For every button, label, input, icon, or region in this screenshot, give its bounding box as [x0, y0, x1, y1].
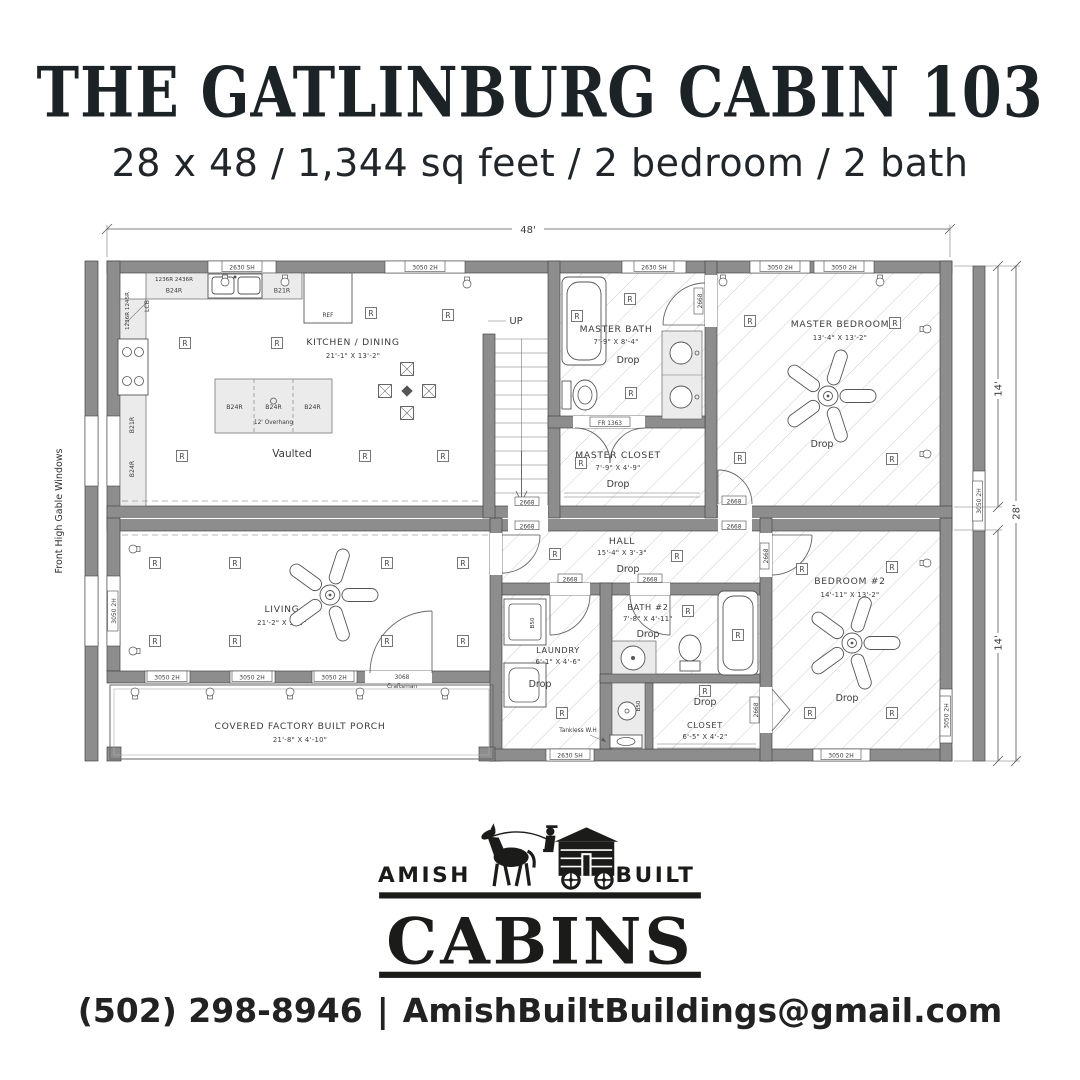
- svg-text:MASTER BATH: MASTER BATH: [580, 324, 653, 335]
- svg-text:Drop: Drop: [811, 439, 834, 450]
- svg-text:HALL: HALL: [609, 536, 635, 547]
- svg-text:Drop: Drop: [617, 564, 640, 575]
- svg-text:B24R: B24R: [304, 404, 321, 411]
- floor-plan: R: [50, 211, 1030, 796]
- washer: [504, 599, 546, 645]
- svg-text:Tankless W.H: Tankless W.H: [558, 728, 597, 734]
- left-gable-wall-strip: [85, 261, 98, 761]
- svg-text:12' Overhang: 12' Overhang: [254, 420, 294, 426]
- refrigerator: REF: [304, 273, 352, 323]
- svg-text:Drop: Drop: [617, 355, 640, 366]
- range: [118, 339, 148, 395]
- logo-divider-bottom: [379, 972, 701, 978]
- svg-text:7'-9" X 4'-9": 7'-9" X 4'-9": [595, 464, 640, 472]
- logo-built: BUILT: [616, 863, 696, 888]
- svg-text:3050 2H: 3050 2H: [111, 598, 118, 624]
- svg-text:COVERED FACTORY BUILT PORCH: COVERED FACTORY BUILT PORCH: [215, 721, 386, 732]
- phone-number: (502) 298-8946: [78, 991, 363, 1030]
- svg-text:7'-9" X 8'-4": 7'-9" X 8'-4": [593, 338, 638, 346]
- svg-text:3050 2H: 3050 2H: [239, 674, 265, 681]
- svg-text:LCB: LCB: [144, 300, 151, 312]
- svg-text:21'-8" X 4'-10": 21'-8" X 4'-10": [273, 736, 327, 744]
- svg-text:Drop: Drop: [637, 629, 660, 640]
- svg-text:B21R: B21R: [274, 288, 291, 295]
- svg-text:B24R: B24R: [226, 404, 243, 411]
- svg-text:B50: B50: [636, 700, 642, 711]
- svg-text:Vaulted: Vaulted: [272, 448, 312, 460]
- svg-text:3050 2H: 3050 2H: [976, 488, 983, 514]
- svg-text:14'-11" X 13'-2": 14'-11" X 13'-2": [821, 591, 880, 599]
- bath2-vanity: [612, 641, 656, 674]
- svg-text:Drop: Drop: [607, 479, 630, 490]
- svg-text:MASTER BEDROOM: MASTER BEDROOM: [791, 319, 890, 330]
- svg-text:1236R 2436R: 1236R 2436R: [155, 277, 193, 283]
- svg-text:B24R: B24R: [166, 288, 183, 295]
- stairs: UP: [488, 316, 548, 504]
- svg-text:15'-4" X 3'-3": 15'-4" X 3'-3": [597, 549, 647, 557]
- svg-text:2630 SH: 2630 SH: [229, 264, 255, 271]
- svg-text:2668: 2668: [563, 578, 578, 584]
- svg-text:3050 2H: 3050 2H: [767, 264, 793, 271]
- svg-text:Drop: Drop: [694, 697, 717, 708]
- logo-amish: AMISH: [378, 863, 471, 888]
- porch: COVERED FACTORY BUILT PORCH 21'-8" X 4'-…: [110, 685, 493, 759]
- svg-text:13'-4" X 13'-2": 13'-4" X 13'-2": [813, 334, 867, 342]
- bath2-toilet: [679, 635, 701, 671]
- tankless-water-heater: [610, 735, 642, 748]
- svg-text:2668: 2668: [727, 525, 742, 531]
- stairs-up-label: UP: [509, 316, 522, 327]
- svg-text:1236R 1245R: 1236R 1245R: [125, 292, 131, 330]
- kitchen-cabinets: REF 1236R 2436R B24R B21R 1236R 1245R LC…: [118, 273, 482, 506]
- svg-text:2668: 2668: [520, 525, 535, 531]
- utility-chase: B50: [610, 683, 645, 749]
- svg-text:3050 2H: 3050 2H: [831, 264, 857, 271]
- svg-text:3050 2H: 3050 2H: [943, 703, 950, 729]
- svg-text:B24R: B24R: [129, 460, 136, 477]
- page-subtitle: 28 x 48 / 1,344 sq feet / 2 bedroom / 2 …: [0, 141, 1080, 185]
- stairs-arrow: [516, 451, 527, 502]
- toilet: [562, 380, 597, 410]
- dim-14-upper: 14': [994, 381, 1005, 396]
- kitchen-island: B24R B24R B24R 12' Overhang: [215, 379, 332, 433]
- svg-text:2630 SH: 2630 SH: [557, 752, 583, 759]
- svg-text:B24R: B24R: [265, 404, 282, 411]
- svg-text:7'-8" X 4'-11": 7'-8" X 4'-11": [623, 615, 673, 623]
- svg-text:3050 2H: 3050 2H: [154, 674, 180, 681]
- svg-text:21'-1" X 13'-2": 21'-1" X 13'-2": [326, 352, 380, 360]
- svg-text:BEDROOM #2: BEDROOM #2: [814, 576, 885, 587]
- svg-text:REF: REF: [322, 313, 333, 319]
- side-note: Front High Gable Windows: [54, 448, 65, 573]
- dim-28: 28': [1012, 504, 1023, 519]
- svg-text:2668: 2668: [727, 500, 742, 506]
- right-wall-strip: 3050 2H: [973, 266, 986, 761]
- svg-text:FR 1363: FR 1363: [598, 421, 622, 427]
- svg-text:3050 2H: 3050 2H: [321, 674, 347, 681]
- dim-14-lower: 14': [994, 635, 1005, 650]
- svg-text:6'-1" X 4'-6": 6'-1" X 4'-6": [535, 658, 580, 666]
- contact-line: (502) 298-8946|AmishBuiltBuildings@gmail…: [0, 991, 1080, 1030]
- amish-built-cabins-logo: AMISH BUILT: [375, 816, 705, 981]
- svg-text:6'-5" X 4'-2": 6'-5" X 4'-2": [682, 733, 727, 741]
- email-address: AmishBuiltBuildings@gmail.com: [403, 991, 1002, 1030]
- svg-text:CLOSET: CLOSET: [687, 720, 723, 730]
- room-living: LIVING 21'-2" X 9'-4" 3068 Craftsman: [122, 535, 540, 690]
- svg-text:3050 2H: 3050 2H: [828, 752, 854, 759]
- logo-cabins: CABINS: [386, 904, 694, 979]
- flyer-page: THE GATLINBURG CABIN 103 28 x 48 / 1,344…: [0, 0, 1080, 1080]
- svg-text:2668: 2668: [764, 548, 770, 563]
- svg-text:2668: 2668: [643, 578, 658, 584]
- separator: |: [377, 991, 389, 1030]
- svg-text:Drop: Drop: [836, 693, 859, 704]
- svg-text:BATH #2: BATH #2: [627, 602, 668, 612]
- svg-text:MASTER CLOSET: MASTER CLOSET: [575, 450, 661, 461]
- logo: AMISH BUILT: [0, 816, 1080, 981]
- svg-text:2668: 2668: [698, 293, 704, 308]
- svg-text:KITCHEN / DINING: KITCHEN / DINING: [306, 337, 399, 348]
- bathtub: [562, 277, 606, 365]
- svg-text:B21R: B21R: [129, 416, 136, 433]
- svg-text:2630 SH: 2630 SH: [641, 264, 667, 271]
- page-title: THE GATLINBURG CABIN 103: [16, 52, 1064, 133]
- double-vanity: [662, 331, 702, 419]
- horse-wagon-icon: [480, 823, 619, 890]
- floor-plan-container: R: [0, 211, 1080, 796]
- dim-48: 48': [520, 225, 535, 236]
- window-label: 3050 2H: [973, 481, 983, 521]
- svg-text:2668: 2668: [520, 501, 535, 507]
- svg-text:3068: 3068: [395, 675, 410, 681]
- svg-text:3050 2H: 3050 2H: [412, 264, 438, 271]
- logo-divider-top: [379, 892, 701, 898]
- svg-text:LAUNDRY: LAUNDRY: [536, 645, 580, 655]
- svg-text:B50: B50: [530, 617, 536, 628]
- svg-text:Drop: Drop: [529, 679, 552, 690]
- kitchen-sink: [208, 274, 262, 298]
- svg-text:2668: 2668: [754, 702, 760, 717]
